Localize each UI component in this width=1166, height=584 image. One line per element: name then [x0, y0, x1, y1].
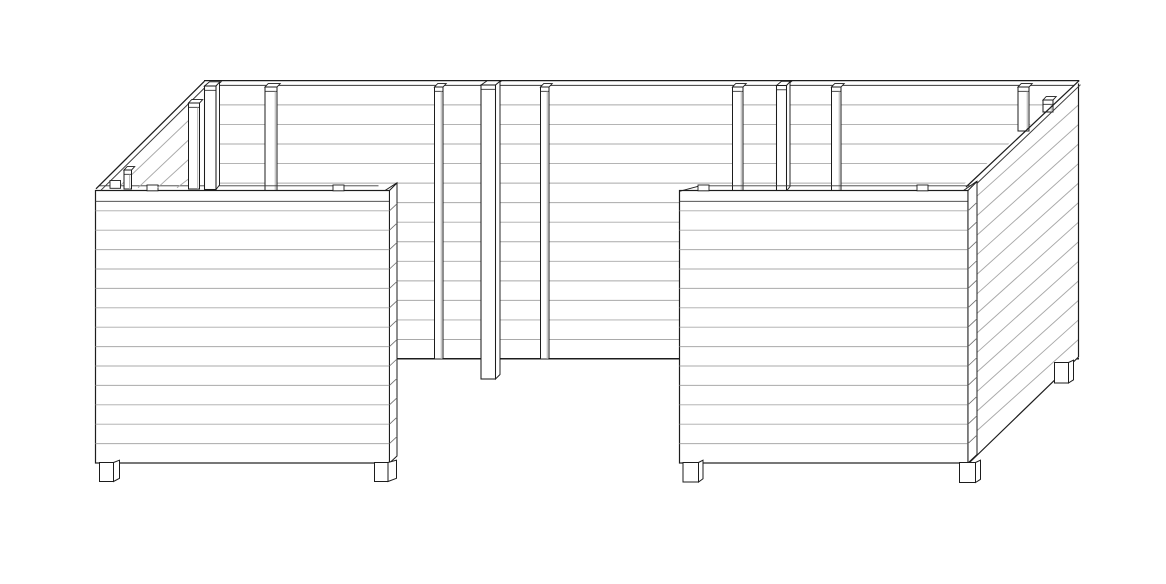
right-front-panel	[680, 181, 981, 482]
left-front-panel	[96, 183, 398, 482]
planter-line-drawing	[0, 0, 1166, 584]
planter-drawing-svg	[0, 0, 1166, 584]
technical-drawing-page	[0, 0, 1166, 584]
